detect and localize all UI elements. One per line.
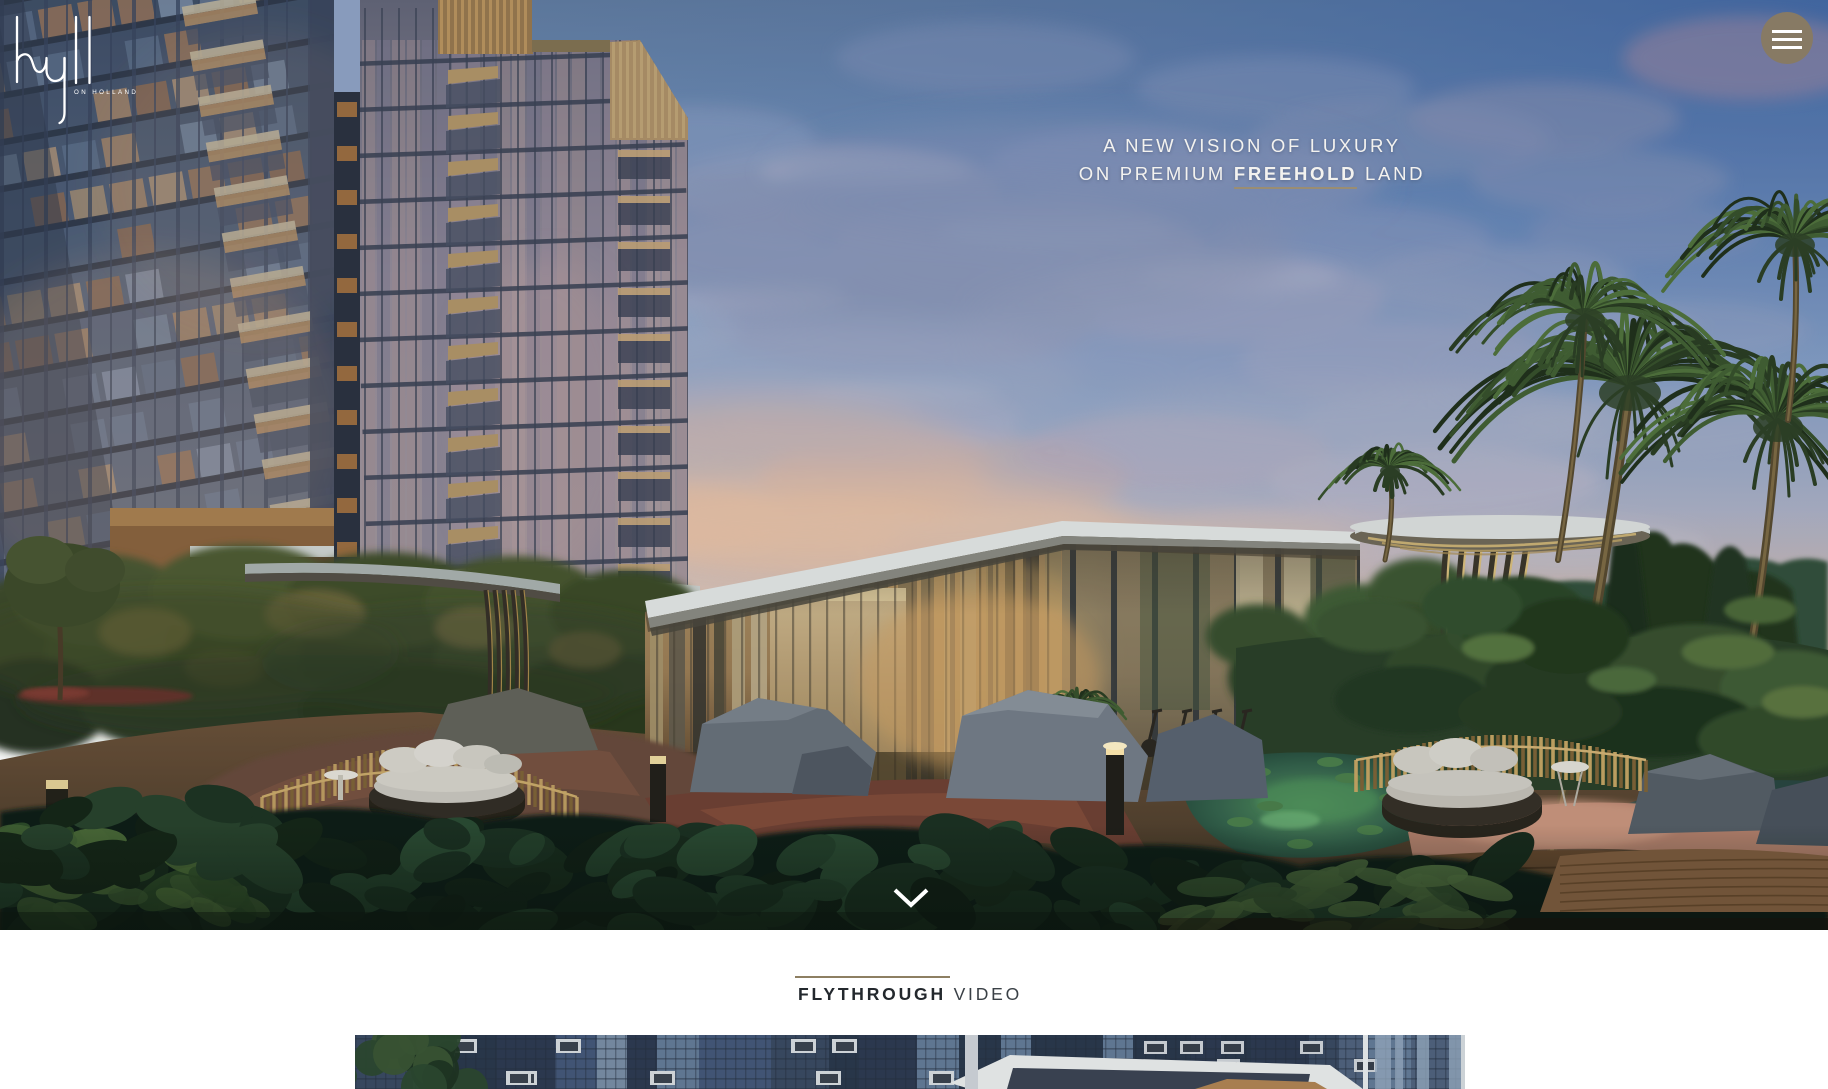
svg-text:ON HOLLAND: ON HOLLAND — [74, 89, 138, 96]
